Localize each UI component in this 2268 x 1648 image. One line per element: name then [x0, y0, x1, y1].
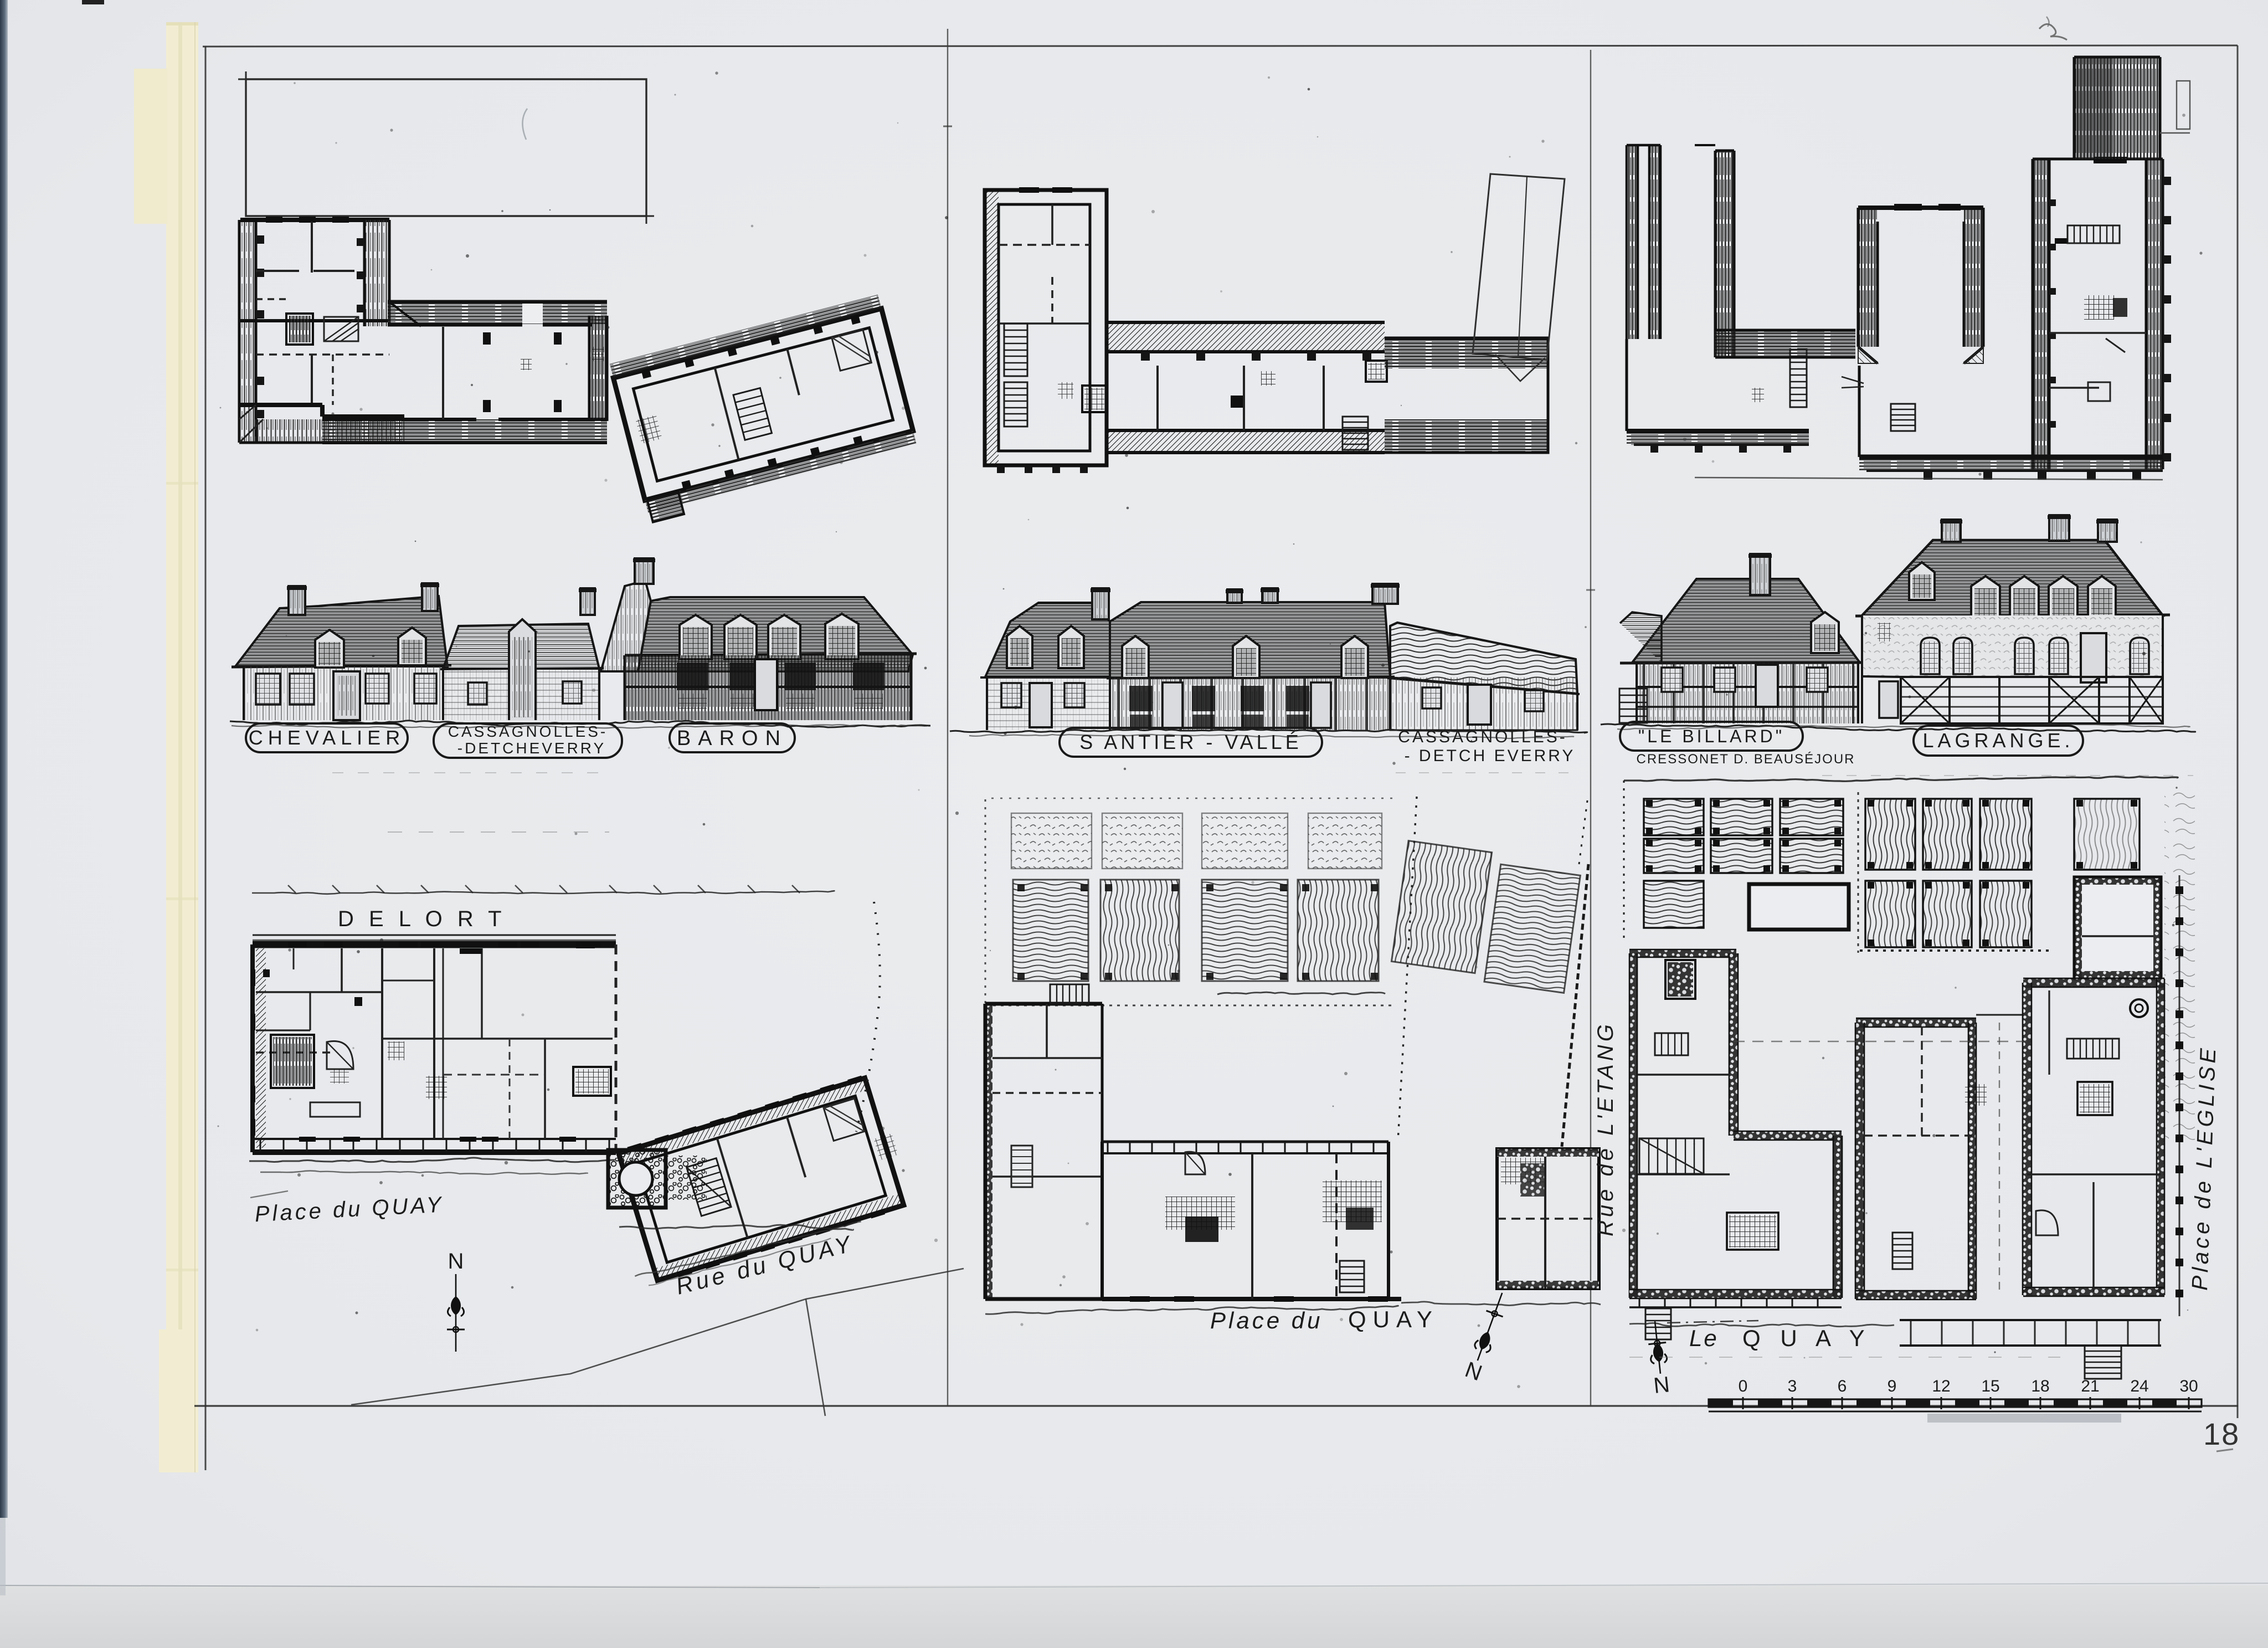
svg-text:S ANTIER - VALLÉ: S ANTIER - VALLÉ	[1079, 731, 1302, 753]
svg-text:18: 18	[2203, 1416, 2240, 1451]
svg-text:N: N	[1652, 1372, 1670, 1398]
svg-text:0: 0	[1739, 1377, 1748, 1395]
svg-text:CRESSONET D. BEAUSÉJOUR: CRESSONET D. BEAUSÉJOUR	[1637, 752, 1855, 767]
svg-text:6: 6	[1838, 1377, 1847, 1395]
svg-text:Place du: Place du	[1210, 1307, 1323, 1333]
svg-text:- DETCH EVERRY: - DETCH EVERRY	[1405, 747, 1576, 765]
svg-text:24: 24	[2130, 1377, 2148, 1395]
svg-text:CHEVALIER: CHEVALIER	[249, 726, 405, 749]
svg-text:QUAY: QUAY	[1348, 1306, 1439, 1332]
svg-text:21: 21	[2081, 1377, 2099, 1395]
svg-text:CASSAGNOLLES-: CASSAGNOLLES-	[1398, 728, 1567, 746]
svg-text:Rue de L'ETANG: Rue de L'ETANG	[1593, 1021, 1618, 1236]
svg-text:D E L O R T: D E L O R T	[338, 907, 506, 931]
svg-text:CASSAGNOLLES-: CASSAGNOLLES-	[448, 723, 608, 740]
svg-text:Le: Le	[1689, 1325, 1719, 1351]
svg-text:N: N	[448, 1249, 464, 1274]
svg-text:-DETCHEVERRY: -DETCHEVERRY	[457, 740, 606, 757]
svg-text:30: 30	[2179, 1377, 2198, 1395]
svg-text:LAGRANGE.: LAGRANGE.	[1922, 729, 2074, 752]
svg-text:Q U A Y: Q U A Y	[1742, 1325, 1871, 1351]
svg-text:BARON: BARON	[677, 727, 788, 750]
svg-text:18: 18	[2031, 1377, 2049, 1395]
svg-text:12: 12	[1932, 1377, 1950, 1395]
svg-text:9: 9	[1888, 1377, 1897, 1395]
svg-text:3: 3	[1788, 1377, 1797, 1395]
svg-text:15: 15	[1981, 1377, 1999, 1395]
svg-text:"LE BILLARD": "LE BILLARD"	[1638, 726, 1784, 746]
